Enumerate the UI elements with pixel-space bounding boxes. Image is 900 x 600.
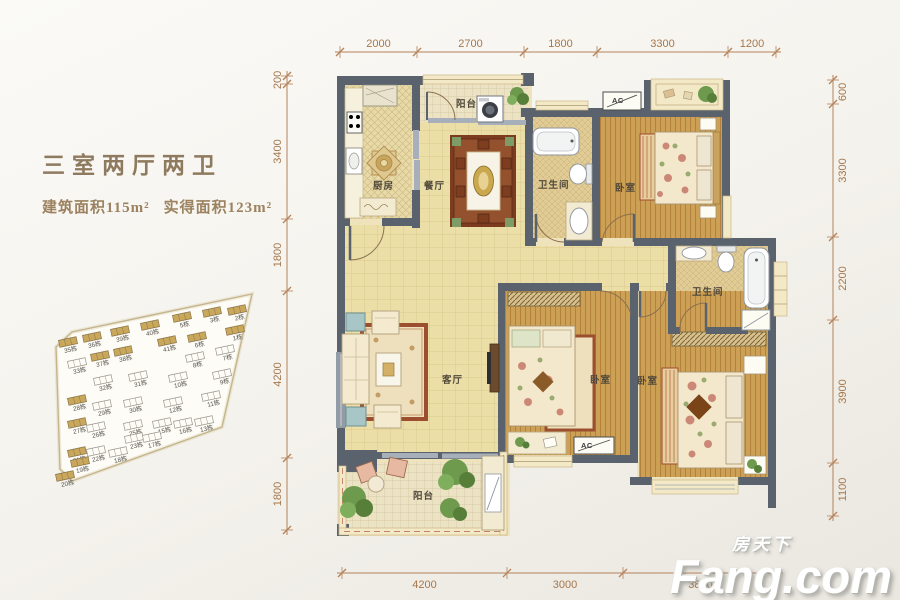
svg-text:3900: 3900 [837,379,849,403]
dimension-right: 6003300220039001100 [827,75,849,521]
svg-text:1100: 1100 [837,478,849,502]
floorplan-canvas: 2栋3栋5栋40栋39栋36栋35栋1栋6栋41栋7栋38栋37栋33栋8栋9栋… [0,0,900,600]
svg-text:阳台: 阳台 [456,98,477,110]
svg-text:卫生间: 卫生间 [692,286,724,298]
armchair [374,405,401,428]
side-table [346,407,366,426]
svg-text:4200: 4200 [272,362,284,386]
svg-text:餐厅: 餐厅 [423,180,445,192]
svg-text:2700: 2700 [458,38,482,50]
svg-text:卧室: 卧室 [590,374,611,386]
dimension-bottom: 420030003800 [337,567,783,591]
svg-text:1800: 1800 [548,38,572,50]
svg-text:4200: 4200 [412,579,436,591]
sink [682,247,706,259]
svg-text:卧室: 卧室 [637,375,658,387]
dimension-top: 20002700180033001200 [335,38,781,58]
sink [566,202,592,240]
svg-text:阳台: 阳台 [413,490,434,502]
dining-set [450,135,516,227]
svg-text:3800: 3800 [688,579,712,591]
kitchen-medallion [367,146,401,180]
svg-text:1800: 1800 [272,243,284,267]
svg-text:3000: 3000 [553,579,577,591]
toilet [570,164,593,184]
side-table [346,313,365,331]
svg-text:卧室: 卧室 [615,182,636,194]
title-block: 三室两厅两卫 建筑面积115m²实得面积123m² [42,146,292,217]
small-table [368,476,384,492]
dimension-left: 2003400180042001800 [272,71,293,535]
floorplan: AC AC [272,38,849,591]
wardrobe-mid [508,292,580,306]
kitchen-fixtures [345,85,401,218]
actual-area: 实得面积123m² [164,200,273,216]
chair [386,457,407,477]
site-building: 20栋 [55,471,76,490]
ac-unit-1: AC [603,92,641,110]
nightstand [744,356,766,374]
area-info: 建筑面积115m²实得面积123m² [42,196,292,217]
svg-text:客厅: 客厅 [441,374,463,386]
ac-unit-2: AC [574,437,614,454]
svg-text:200: 200 [272,71,284,89]
svg-text:卫生间: 卫生间 [538,179,570,191]
svg-text:2000: 2000 [366,38,390,50]
svg-text:600: 600 [837,83,849,101]
tv-console [490,344,499,392]
built-area: 建筑面积115m² [42,200,150,216]
svg-text:1200: 1200 [740,38,764,50]
site-plan: 2栋3栋5栋40栋39栋36栋35栋1栋6栋41栋7栋38栋37栋33栋8栋9栋… [55,294,252,490]
svg-text:1800: 1800 [272,482,284,506]
sofa [342,334,369,404]
armchair [372,311,399,334]
svg-text:3300: 3300 [650,38,674,50]
svg-text:厨房: 厨房 [373,180,394,192]
svg-text:3300: 3300 [837,158,849,182]
page-title: 三室两厅两卫 [42,146,292,180]
svg-text:2200: 2200 [837,266,849,290]
svg-text:AC: AC [612,96,624,105]
floorplan-page: 2栋3栋5栋40栋39栋36栋35栋1栋6栋41栋7栋38栋37栋33栋8栋9栋… [0,0,900,600]
wardrobe-master [672,332,766,346]
svg-text:AC: AC [581,441,593,450]
